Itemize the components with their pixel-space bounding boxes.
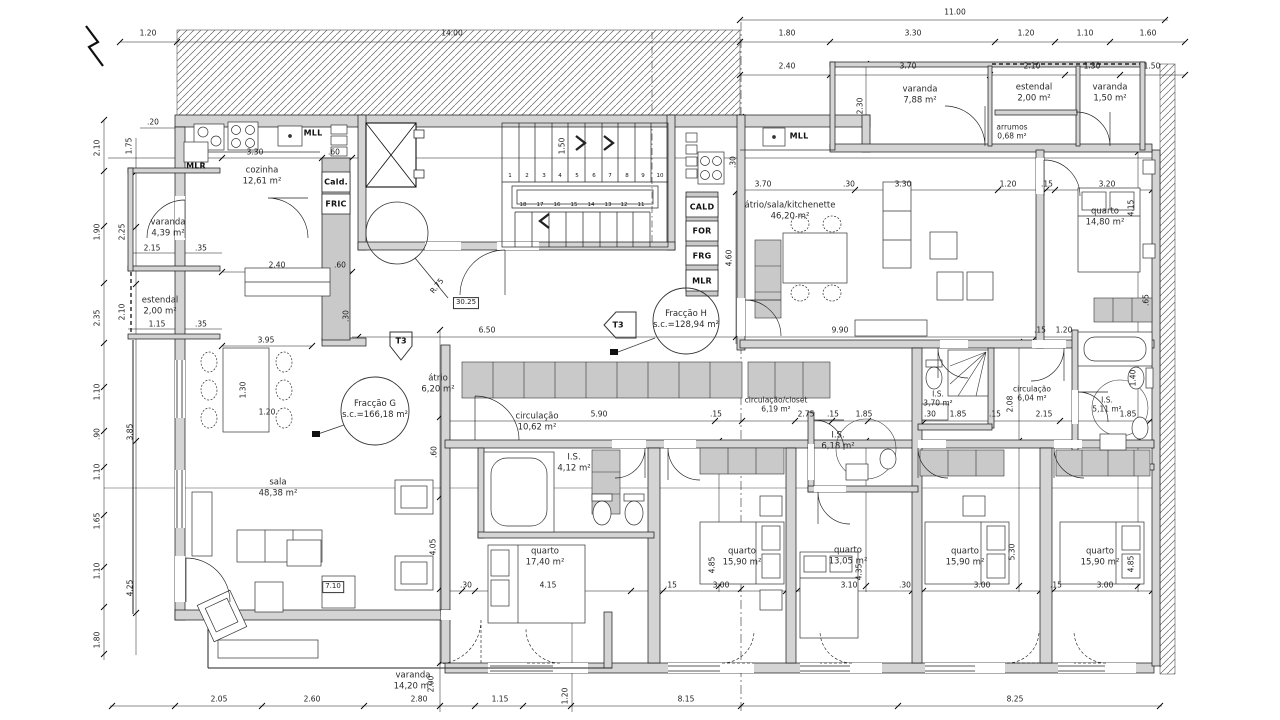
dim-label: 4.15 (1127, 200, 1135, 217)
room-label-sala-h: átrio/sala/kitchenette46,20 m² (745, 200, 836, 221)
dim-label: .15 (989, 410, 1001, 418)
armchair-icon (967, 272, 993, 300)
room-label-atrio-g: átrio6,20 m² (421, 373, 454, 394)
stair-number: 10 (657, 173, 664, 179)
level-marker-sala: 7.10 (322, 581, 344, 593)
dim-label: 3.00 (1097, 581, 1114, 589)
stair-number: 11 (638, 202, 645, 208)
sink-icon (846, 464, 868, 480)
dim-label: 1.10 (93, 384, 101, 401)
dim-label: .30 (342, 310, 350, 322)
dim-label: 6.50 (479, 326, 496, 334)
dim-label: .35 (195, 320, 207, 328)
stair-number: 9 (641, 173, 645, 179)
fraction-g-label: Fracção Gs.c.=166,18 m² (342, 399, 408, 421)
appliance-label-for: FOR (692, 227, 711, 236)
break-mark-icon (86, 26, 103, 66)
dim-label: .15 (827, 410, 839, 418)
dim-label: 11.00 (944, 8, 965, 16)
level-marker-core: 30.25 (453, 297, 479, 309)
dim-label: 3.10 (841, 581, 858, 589)
dim-label: .30 (460, 581, 472, 589)
stair-number: 8 (625, 173, 629, 179)
dim-label: 1.80 (93, 632, 101, 649)
dim-label: 2.15 (144, 244, 161, 252)
dim-label: 2.35 (93, 310, 101, 327)
sink-icon (1100, 434, 1126, 450)
dim-label: 2.80 (411, 695, 428, 703)
dim-label: 2.75 (798, 410, 815, 418)
dim-label: 1.30 (239, 382, 247, 399)
dim-label: 9.90 (832, 326, 849, 334)
appliance-label-cald: Cald. (324, 178, 348, 187)
room-label-estendal-h: estendal2,00 m² (1016, 82, 1053, 103)
dim-label: .30 (843, 180, 855, 188)
dim-label: 2.40 (779, 62, 796, 70)
dim-label: 3.00 (713, 581, 730, 589)
dim-label: .15 (710, 410, 722, 418)
dim-label: 3.20 (1099, 180, 1116, 188)
dim-label: 2.10 (118, 304, 126, 321)
dim-label: 3.85 (126, 424, 134, 441)
stair-number: 5 (575, 173, 579, 179)
sofa-icon (883, 182, 911, 268)
dim-label: .35 (195, 244, 207, 252)
stair-number: 16 (554, 202, 561, 208)
dim-label: 3.95 (258, 336, 275, 344)
dim-label: 1.60 (1140, 29, 1157, 37)
dim-label: 8.15 (678, 695, 695, 703)
appliance-label-mlr: MLR (186, 162, 206, 171)
appliance-label-frg: FRG (693, 252, 712, 261)
room-label-varanda-h1: varanda7,88 m² (903, 84, 938, 105)
appliance-label-fric: FRIC (325, 200, 346, 209)
room-label-quarto-g1: quarto17,40 m² (526, 546, 565, 567)
room-label-circulacao-g: circulação10,62 m² (515, 411, 558, 432)
dim-label: .15 (665, 581, 677, 589)
dim-label: 1.90 (93, 224, 101, 241)
dim-label: .65 (1142, 294, 1150, 306)
stair-number: 13 (605, 202, 612, 208)
stair-number: 17 (537, 202, 544, 208)
shower-icon (948, 350, 988, 396)
dim-label: 2.40 (269, 261, 286, 269)
dim-label: 4.85 (708, 557, 716, 574)
dim-label: 1.40 (1129, 370, 1137, 387)
dim-label: .60 (328, 148, 340, 156)
dim-label: 1.85 (856, 410, 873, 418)
armchair-icon (937, 272, 963, 300)
dim-label: .15 (1034, 326, 1046, 334)
dim-label: 2.05 (211, 695, 228, 703)
dim-label: 1.20 (259, 408, 276, 416)
stair-number: 2 (525, 173, 529, 179)
room-label-is-h2: I.S.5,11 m² (1092, 396, 1121, 415)
room-label-quarto-h2: quarto15,90 m² (946, 546, 985, 567)
dim-label: 3.00 (974, 581, 991, 589)
dim-label: 5.30 (1008, 544, 1016, 561)
dim-label: 2.60 (304, 695, 321, 703)
dim-label: 1.20 (140, 29, 157, 37)
room-label-circulacao-h: circulação6,04 m² (1013, 385, 1051, 404)
stair-number: 12 (621, 202, 628, 208)
dim-label: .20 (147, 118, 159, 126)
dim-label: 1.10 (93, 563, 101, 580)
dim-label: 1.20 (1000, 180, 1017, 188)
t3-marker-g: T3 (395, 337, 406, 346)
dim-label: 1.10 (1077, 29, 1094, 37)
dim-label: 4.25 (126, 580, 134, 597)
room-label-arrumos: arrumos0,68 m² (996, 123, 1027, 142)
stair-number: 15 (571, 202, 578, 208)
room-label-is-mid: I.S.6,18 m² (821, 430, 854, 451)
appliance-label-mll2: MLL (790, 132, 809, 141)
dim-label: 1.30 (1084, 62, 1101, 70)
dim-label: 3.70 (755, 180, 772, 188)
dim-label: 4.60 (725, 250, 733, 267)
dim-label: 2.10 (1024, 62, 1041, 70)
dim-label: 1.80 (779, 29, 796, 37)
dim-label: 1.85 (950, 410, 967, 418)
dim-label: 2.30 (856, 98, 864, 115)
dim-label: 4.85 (1127, 556, 1135, 573)
elevator (366, 123, 424, 187)
bidet-icon (1132, 417, 1148, 439)
dim-label: 2.00 (427, 676, 435, 693)
room-label-cozinha: cozinha12,61 m² (243, 165, 282, 186)
dim-label: .60 (334, 261, 346, 269)
dim-label: 4.15 (540, 581, 557, 589)
stair-number: 7 (608, 173, 612, 179)
dim-label: .90 (93, 428, 101, 440)
staircase (502, 123, 668, 247)
dim-label: 4.35 (855, 564, 863, 581)
dim-label: 8.25 (1007, 695, 1024, 703)
appliance-label-mll: MLL (304, 129, 323, 138)
dim-label: 1.15 (149, 320, 166, 328)
dim-label: 3.30 (247, 148, 264, 156)
room-label-quarto-h3: quarto15,90 m² (1081, 546, 1120, 567)
dim-label: 1.20 (561, 688, 569, 705)
dim-label: .15 (1050, 581, 1062, 589)
room-label-quarto-g2: quarto15,90 m² (723, 546, 762, 567)
stair-number: 4 (558, 173, 562, 179)
room-label-varanda-g: varanda4,39 m² (151, 217, 186, 238)
dim-label: 3.70 (900, 62, 917, 70)
stair-number: 1 (508, 173, 512, 179)
dim-label: 1.20 (1056, 326, 1073, 334)
dim-label: 14.00 (441, 29, 462, 37)
dryer-icon (184, 142, 208, 162)
toilet-icon (926, 367, 942, 389)
dim-label: 2.10 (93, 140, 101, 157)
room-label-is-g: I.S.4,12 m² (557, 452, 590, 473)
stair-number: 18 (520, 202, 527, 208)
dim-label: 2.15 (1036, 410, 1053, 418)
dim-label: .60 (430, 446, 438, 458)
hob-icon (698, 152, 724, 184)
dim-label: 1.75 (125, 138, 133, 155)
dim-label: 1.65 (93, 513, 101, 530)
floor-plan-drawing: cozinha12,61 m² varanda4,39 m² estendal2… (0, 0, 1280, 720)
dim-label: 3.30 (895, 180, 912, 188)
toilet-icon (880, 449, 896, 469)
dim-label: 1.10 (93, 464, 101, 481)
dim-label: 1.15 (492, 695, 509, 703)
dim-label: 2.25 (118, 224, 126, 241)
dim-label: .15 (1041, 180, 1053, 188)
dim-label: 3.30 (905, 29, 922, 37)
toilet-icon (593, 501, 611, 525)
room-label-quarto-h1: quarto14,80 m² (1086, 206, 1125, 227)
plan-linework (0, 0, 1280, 720)
dim-label: .30 (899, 581, 911, 589)
t3-marker-h: T3 (612, 321, 623, 330)
dim-label: 2.08 (1006, 396, 1014, 413)
dim-label: .30 (924, 410, 936, 418)
stair-number: 14 (588, 202, 595, 208)
bidet-icon (625, 501, 643, 525)
dim-label: 1.50 (1144, 62, 1161, 70)
dining-table-icon (783, 233, 847, 283)
room-label-varanda-h2: varanda1,50 m² (1093, 82, 1128, 103)
bed-icon (925, 496, 1009, 584)
appliance-label-mlr2: MLR (692, 277, 712, 286)
dim-label: 1.50 (558, 138, 566, 155)
appliance-label-cald2: CALD (690, 203, 715, 212)
room-label-estendal-g: estendal2,00 m² (142, 295, 179, 316)
dim-label: 1.85 (1120, 410, 1137, 418)
dim-label: 1.20 (1018, 29, 1035, 37)
dim-label: .30 (729, 156, 737, 168)
dim-label: 5.90 (591, 410, 608, 418)
room-label-sala: sala48,38 m² (259, 477, 298, 498)
stair-number: 3 (542, 173, 546, 179)
dim-label: 4.05 (429, 539, 437, 556)
fraction-h-label: Fracção Hs.c.=128,94 m² (653, 309, 719, 331)
stair-number: 6 (592, 173, 596, 179)
room-label-is-h1: I.S.3,70 m² (923, 390, 952, 409)
